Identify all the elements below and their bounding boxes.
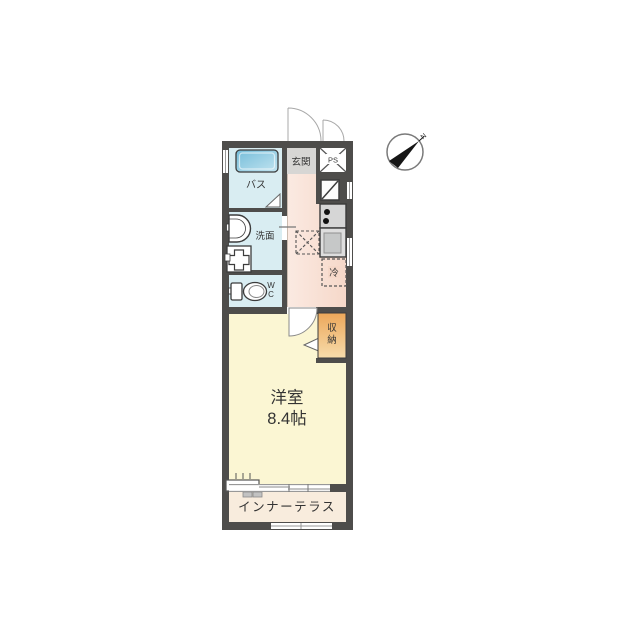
entrance-label: 玄関 (291, 156, 310, 168)
pipe-space-label: PS (328, 156, 338, 165)
main-room-label-line2: 8.4帖 (267, 409, 306, 428)
terrace-window (271, 523, 332, 529)
pipe-space: PS (320, 148, 346, 172)
bathtub-icon (236, 150, 278, 172)
floor-plan-page: N PS (0, 0, 640, 640)
terrace-sliding-door (229, 484, 330, 492)
floor-plan-drawing: N PS (0, 0, 640, 640)
wc-label-line2: C (268, 290, 274, 299)
compass-icon: N (387, 133, 428, 170)
washbasin-icon (227, 215, 251, 242)
storage-closet: 収 納 (318, 313, 346, 358)
toilet-icon (229, 283, 267, 301)
main-room-label-line1: 洋室 (271, 388, 304, 407)
storage-label-line2: 納 (327, 334, 337, 346)
duct-shaft-icon (321, 180, 339, 200)
refrigerator-label: 冷 (329, 267, 339, 279)
terrace-label: インナーテラス (238, 500, 336, 514)
washer-pan-icon (225, 246, 251, 272)
washroom-label: 洗面 (255, 230, 274, 242)
storage-label-line1: 収 (327, 322, 337, 334)
bath-label: バス (246, 179, 266, 191)
wc-label-line1: W (267, 281, 275, 290)
compass-north-label: N (420, 133, 428, 142)
kitchen-sink-icon (320, 228, 346, 257)
stove-icon (320, 204, 346, 228)
entry-door-swing-arcs (288, 108, 344, 141)
